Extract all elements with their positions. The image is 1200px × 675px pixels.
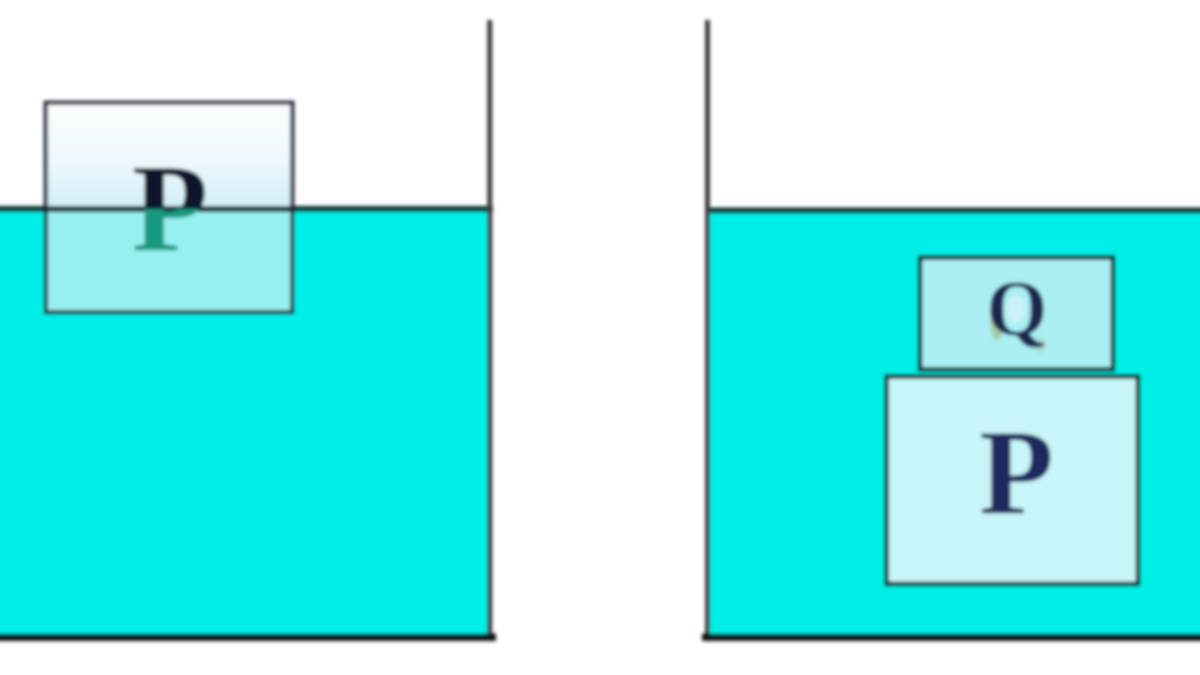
svg-text:Q: Q	[987, 265, 1048, 352]
svg-text:P: P	[979, 406, 1054, 541]
